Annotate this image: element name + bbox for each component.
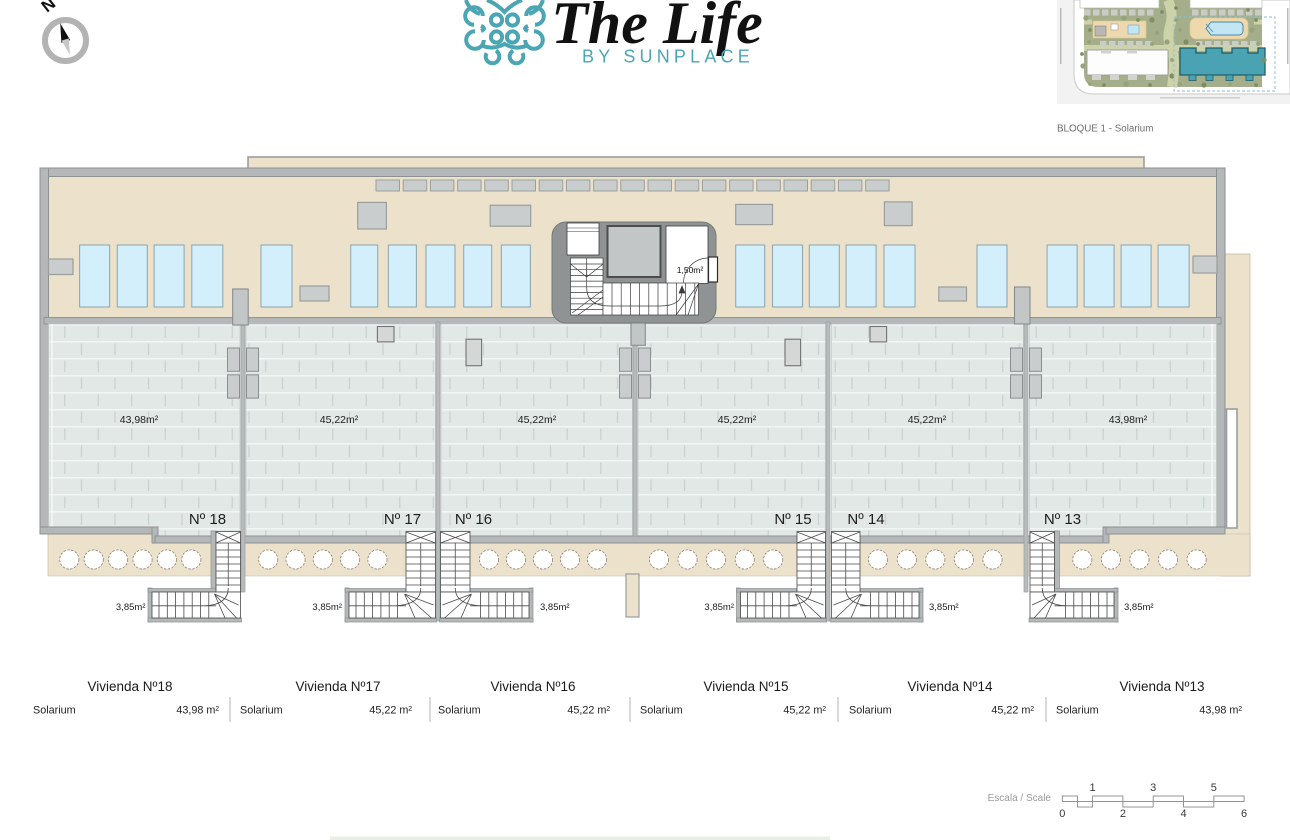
- svg-text:N: N: [38, 0, 59, 16]
- svg-text:Nº 18: Nº 18: [189, 511, 226, 528]
- svg-text:43,98m²: 43,98m²: [1109, 414, 1148, 426]
- svg-text:3: 3: [1150, 782, 1156, 794]
- svg-text:Solarium: Solarium: [1056, 705, 1099, 717]
- svg-text:Vivienda Nº17: Vivienda Nº17: [296, 679, 381, 694]
- svg-text:45,22 m²: 45,22 m²: [783, 705, 826, 717]
- svg-text:Solarium: Solarium: [640, 705, 683, 717]
- svg-text:45,22m²: 45,22m²: [718, 414, 757, 426]
- svg-text:Nº 16: Nº 16: [455, 511, 492, 528]
- svg-text:45,22 m²: 45,22 m²: [991, 705, 1034, 717]
- svg-text:45,22 m²: 45,22 m²: [567, 705, 610, 717]
- svg-text:1,50m²: 1,50m²: [677, 265, 704, 275]
- svg-text:Solarium: Solarium: [849, 705, 892, 717]
- svg-text:43,98 m²: 43,98 m²: [176, 705, 219, 717]
- svg-text:45,22m²: 45,22m²: [320, 414, 359, 426]
- svg-text:Vivienda Nº18: Vivienda Nº18: [88, 679, 173, 694]
- svg-text:5: 5: [1211, 782, 1217, 794]
- svg-text:3,85m²: 3,85m²: [929, 602, 959, 613]
- svg-text:BLOQUE 1 - Solarium: BLOQUE 1 - Solarium: [1057, 124, 1153, 135]
- svg-text:BY SUNPLACE: BY SUNPLACE: [582, 47, 754, 67]
- svg-text:Nº 13: Nº 13: [1044, 511, 1081, 528]
- svg-text:2: 2: [1120, 808, 1126, 820]
- svg-text:45,22m²: 45,22m²: [908, 414, 947, 426]
- svg-text:3,85m²: 3,85m²: [540, 602, 570, 613]
- svg-text:Vivienda Nº16: Vivienda Nº16: [491, 679, 576, 694]
- svg-text:4: 4: [1180, 808, 1186, 820]
- svg-text:Solarium: Solarium: [240, 705, 283, 717]
- svg-text:Nº 14: Nº 14: [847, 511, 884, 528]
- svg-text:3,85m²: 3,85m²: [1124, 602, 1154, 613]
- svg-text:3,85m²: 3,85m²: [116, 602, 146, 613]
- svg-text:0: 0: [1059, 808, 1065, 820]
- svg-text:45,22 m²: 45,22 m²: [369, 705, 412, 717]
- svg-text:Escala / Scale: Escala / Scale: [988, 793, 1052, 804]
- svg-text:Nº 17: Nº 17: [384, 511, 421, 528]
- svg-text:Solarium: Solarium: [438, 705, 481, 717]
- svg-text:1: 1: [1090, 782, 1096, 794]
- svg-text:3,85m²: 3,85m²: [704, 602, 734, 613]
- svg-text:Vivienda Nº13: Vivienda Nº13: [1120, 679, 1205, 694]
- svg-text:Vivienda Nº15: Vivienda Nº15: [704, 679, 789, 694]
- svg-text:6: 6: [1241, 808, 1247, 820]
- svg-text:Solarium: Solarium: [33, 705, 76, 717]
- svg-text:Nº 15: Nº 15: [774, 511, 811, 528]
- svg-text:43,98 m²: 43,98 m²: [1199, 705, 1242, 717]
- svg-text:45,22m²: 45,22m²: [518, 414, 557, 426]
- svg-text:3,85m²: 3,85m²: [312, 602, 342, 613]
- svg-text:Vivienda Nº14: Vivienda Nº14: [908, 679, 993, 694]
- svg-text:43,98m²: 43,98m²: [120, 414, 159, 426]
